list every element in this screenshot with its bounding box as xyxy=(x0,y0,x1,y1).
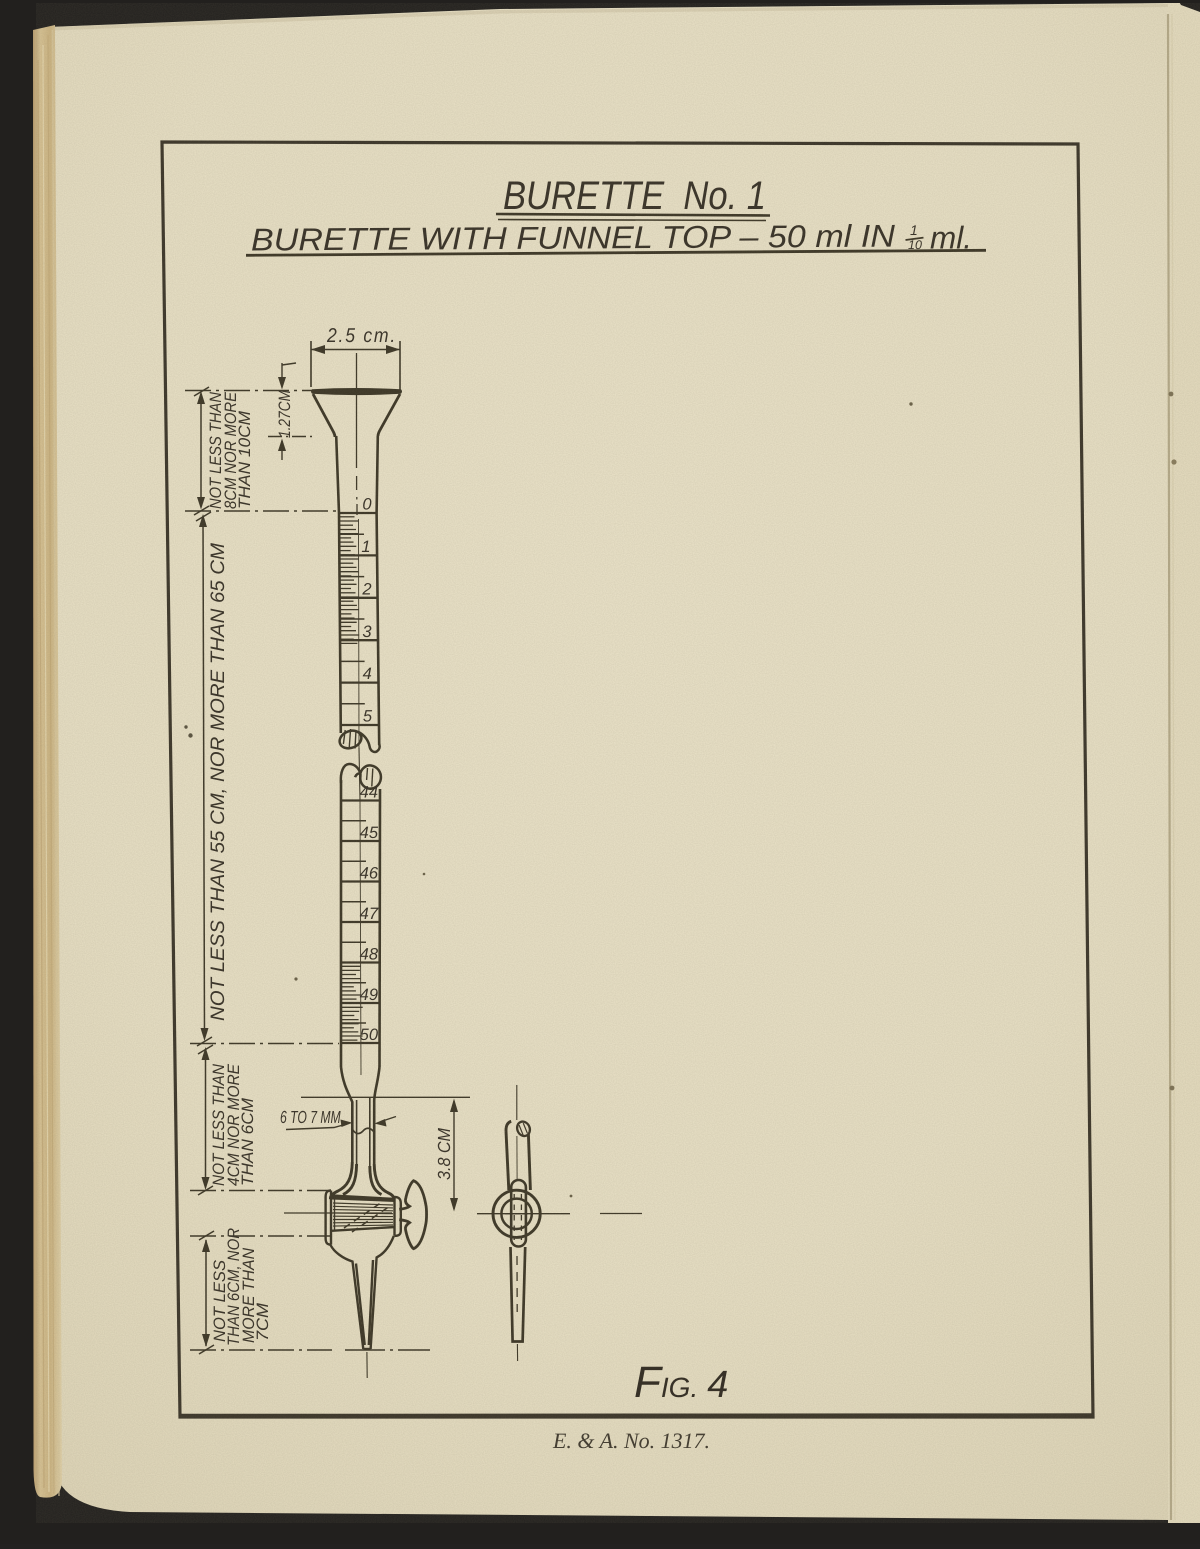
svg-text:0: 0 xyxy=(362,496,372,514)
svg-text:1.27CM: 1.27CM xyxy=(276,390,294,438)
svg-text:47: 47 xyxy=(360,905,379,923)
svg-text:1: 1 xyxy=(361,538,370,556)
svg-text:5: 5 xyxy=(363,708,373,726)
svg-text:7CM: 7CM xyxy=(254,1303,272,1341)
svg-text:BURETTE No. 1: BURETTE No. 1 xyxy=(503,174,766,218)
svg-text:THAN 6CM: THAN 6CM xyxy=(239,1098,257,1186)
svg-text:2: 2 xyxy=(361,580,371,598)
svg-text:NOT LESS THAN 55 CM, NOR MORE: NOT LESS THAN 55 CM, NOR MORE THAN 65 CM xyxy=(207,542,229,1021)
svg-text:6 TO 7 MM.: 6 TO 7 MM. xyxy=(280,1107,344,1127)
svg-text:4: 4 xyxy=(363,665,372,683)
svg-text:1: 1 xyxy=(910,222,918,238)
svg-text:50: 50 xyxy=(360,1026,379,1044)
svg-text:46: 46 xyxy=(360,865,379,883)
svg-text:44: 44 xyxy=(360,784,378,802)
svg-text:2.5 cm.: 2.5 cm. xyxy=(326,325,397,347)
svg-text:E. & A. No. 1317.: E. & A. No. 1317. xyxy=(552,1428,710,1453)
svg-text:3.8 CM: 3.8 CM xyxy=(434,1128,454,1180)
svg-text:3: 3 xyxy=(362,623,372,641)
svg-text:48: 48 xyxy=(360,946,379,964)
svg-text:49: 49 xyxy=(360,986,378,1004)
svg-text:45: 45 xyxy=(360,824,379,842)
svg-text:THAN 10CM: THAN 10CM xyxy=(236,411,254,509)
